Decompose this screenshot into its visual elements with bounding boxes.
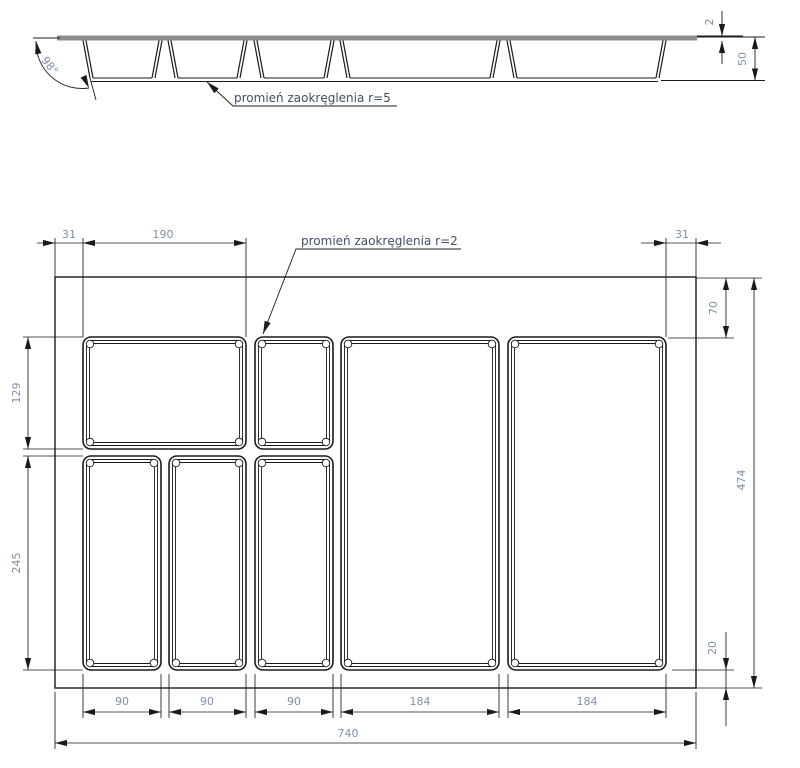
left-dimensions: 129 245 bbox=[10, 337, 83, 670]
compartment-floor-edge bbox=[176, 463, 240, 664]
compartment-wall-edge bbox=[87, 460, 158, 667]
dim-70-label: 70 bbox=[707, 301, 720, 315]
angle-dimension: 98° bbox=[33, 38, 96, 100]
corner-fillet-circle bbox=[258, 340, 266, 348]
corner-fillet-circle bbox=[172, 459, 180, 467]
compartment-wall-edge bbox=[173, 460, 243, 667]
radius-note-r2-leader: promień zaokręglenia r=2 bbox=[260, 234, 461, 335]
corner-fillet-circle bbox=[322, 659, 330, 667]
bottom-dimensions: 90 90 90 184 184 740 bbox=[55, 674, 696, 749]
corner-fillet-circle bbox=[655, 659, 663, 667]
radius-note-r2: promień zaokręglenia r=2 bbox=[301, 234, 458, 248]
compartment-rim-edge bbox=[341, 337, 499, 670]
section-top-rim bbox=[57, 36, 697, 41]
compartment-a bbox=[83, 337, 246, 449]
corner-fillet-circle bbox=[150, 459, 158, 467]
dim-31-left-label: 31 bbox=[62, 228, 76, 241]
corner-fillet-circle bbox=[172, 659, 180, 667]
corner-fillet-circle bbox=[150, 659, 158, 667]
compartment-rim-edge bbox=[255, 456, 333, 670]
corner-fillet-circle bbox=[488, 340, 496, 348]
top-extension-lines bbox=[55, 238, 696, 337]
dim-474-label: 474 bbox=[735, 470, 748, 491]
compartment-wall-edge bbox=[87, 341, 243, 446]
compartment-wall-edge bbox=[345, 341, 496, 667]
compartment-rim-edge bbox=[83, 456, 161, 670]
dim-31-right-label: 31 bbox=[675, 228, 689, 241]
plan-view: promień zaokręglenia r=2 31 190 31 129 2… bbox=[10, 228, 762, 749]
compartment-c bbox=[341, 337, 499, 670]
compartment-rim-edge bbox=[255, 337, 333, 449]
tray-outline bbox=[55, 277, 696, 688]
corner-fillet-circle bbox=[235, 659, 243, 667]
corner-fillet-circle bbox=[511, 659, 519, 667]
dim-245-label: 245 bbox=[10, 553, 23, 574]
compartment-wall-edge bbox=[259, 341, 330, 446]
radius-note-r5-leader: promień zaokręglenia r=5 bbox=[205, 80, 397, 106]
drawing-sheet: 98° 2 50 promień zaokręglenia r=5 bbox=[0, 0, 800, 768]
compartment-floor-edge bbox=[90, 344, 240, 443]
compartment-d bbox=[508, 337, 666, 670]
compartment-rim-edge bbox=[508, 337, 666, 670]
height-dimension: 50 bbox=[661, 37, 765, 81]
corner-fillet-circle bbox=[258, 459, 266, 467]
compartment-wall-edge bbox=[259, 460, 330, 667]
section-view: 98° 2 50 promień zaokręglenia r=5 bbox=[33, 11, 765, 106]
left-extension-lines bbox=[23, 337, 83, 670]
dim-740-label: 740 bbox=[338, 727, 359, 740]
height-label: 50 bbox=[736, 52, 749, 66]
corner-fillet-circle bbox=[86, 438, 94, 446]
compartments bbox=[83, 337, 666, 670]
dim-90-label-2: 90 bbox=[200, 695, 214, 708]
dim-20-label: 20 bbox=[706, 641, 719, 655]
corner-fillet-circle bbox=[86, 459, 94, 467]
corner-fillet-circle bbox=[511, 340, 519, 348]
corner-fillet-circle bbox=[86, 659, 94, 667]
corner-fillet-circle bbox=[322, 459, 330, 467]
compartment-floor-edge bbox=[262, 344, 327, 443]
section-divider-walls bbox=[152, 41, 517, 79]
overall-width-extension-lines bbox=[55, 692, 696, 749]
corner-fillet-circle bbox=[235, 438, 243, 446]
section-left-wall bbox=[83, 41, 93, 79]
radius-note-r5: promień zaokręglenia r=5 bbox=[234, 91, 391, 105]
dim-129-label: 129 bbox=[10, 383, 23, 404]
angle-arrow-top bbox=[33, 40, 42, 54]
dim-184-label-2: 184 bbox=[577, 695, 598, 708]
thickness-label: 2 bbox=[703, 19, 716, 26]
corner-fillet-circle bbox=[235, 340, 243, 348]
corner-fillet-circle bbox=[258, 659, 266, 667]
dim-184-label-1: 184 bbox=[410, 695, 431, 708]
compartment-e bbox=[83, 456, 161, 670]
corner-fillet-circle bbox=[322, 340, 330, 348]
angle-label: 98° bbox=[39, 54, 61, 77]
corner-fillet-circle bbox=[235, 459, 243, 467]
corner-fillet-circle bbox=[488, 659, 496, 667]
compartment-floor-edge bbox=[90, 463, 155, 664]
dim-90-label-3: 90 bbox=[287, 695, 301, 708]
corner-fillet-circle bbox=[344, 340, 352, 348]
corner-fillet-circle bbox=[344, 659, 352, 667]
dim-190-label: 190 bbox=[153, 228, 174, 241]
compartment-floor-edge bbox=[348, 344, 493, 664]
compartment-wall-edge bbox=[512, 341, 663, 667]
cutlery-tray-technical-drawing: 98° 2 50 promień zaokręglenia r=5 bbox=[0, 0, 800, 768]
corner-fillet-circle bbox=[322, 438, 330, 446]
corner-fillet-circle bbox=[258, 438, 266, 446]
compartment-rim-edge bbox=[169, 456, 246, 670]
leader-line-r2 bbox=[263, 249, 461, 334]
corner-fillet-circle bbox=[655, 340, 663, 348]
dim-90-label-1: 90 bbox=[115, 695, 129, 708]
section-right-wall bbox=[656, 41, 666, 79]
corner-fillet-circle bbox=[86, 340, 94, 348]
compartment-floor-edge bbox=[262, 463, 327, 664]
compartment-b bbox=[255, 337, 333, 449]
compartment-g bbox=[255, 456, 333, 670]
compartment-rim-edge bbox=[83, 337, 246, 449]
leader-arrow-r2 bbox=[260, 321, 271, 335]
compartment-f bbox=[169, 456, 246, 670]
right-dimensions: 70 474 20 bbox=[668, 278, 762, 726]
compartment-floor-edge bbox=[515, 344, 660, 664]
